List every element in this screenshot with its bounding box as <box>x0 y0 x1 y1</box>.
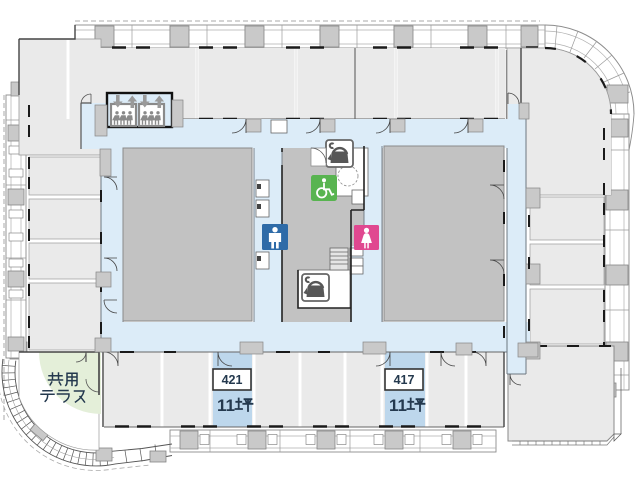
svg-text:417: 417 <box>394 373 415 387</box>
svg-text:421: 421 <box>222 373 243 387</box>
svg-text:11: 11 <box>217 396 235 415</box>
svg-text:11: 11 <box>389 396 407 415</box>
